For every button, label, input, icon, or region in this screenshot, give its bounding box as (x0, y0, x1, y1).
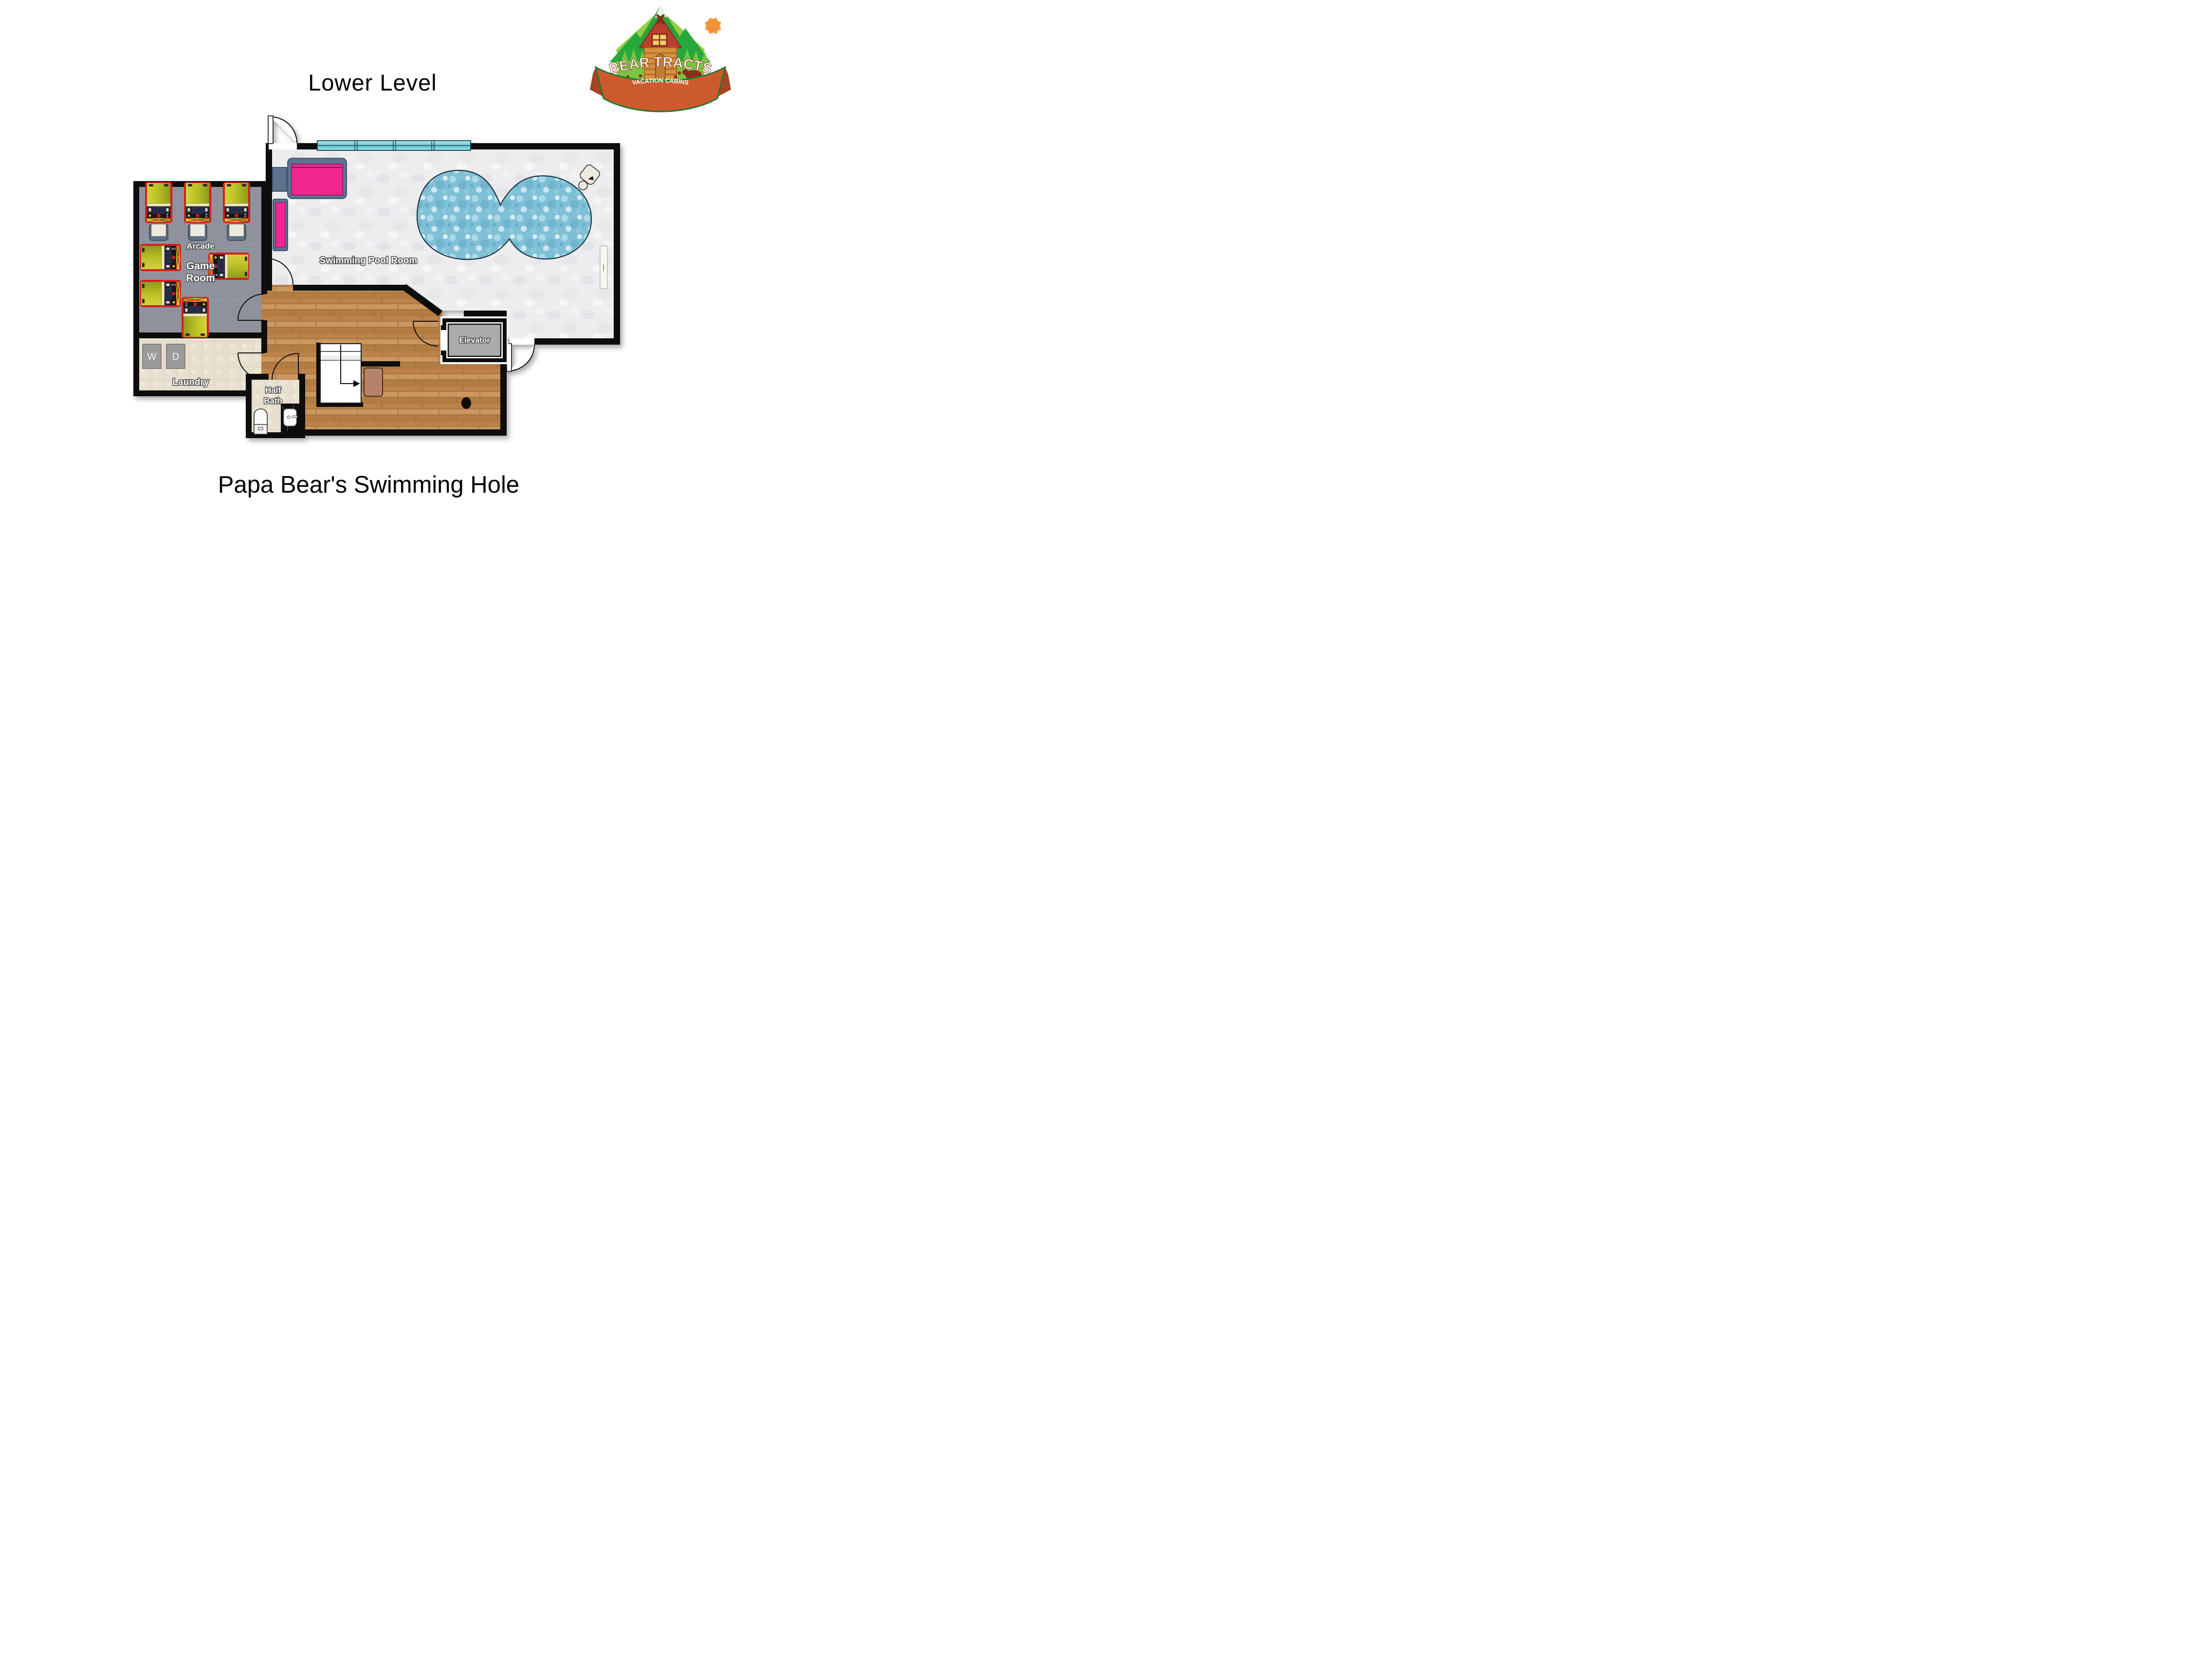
game-room-label-1: Game (186, 260, 215, 272)
pool-room-windows (317, 141, 471, 150)
arcade-machine (182, 297, 209, 338)
exterior-door-top (268, 116, 297, 149)
elevator-door-gap (441, 330, 446, 350)
arcade-stool (149, 224, 168, 240)
arcade-machine (223, 182, 250, 223)
wall-heater (600, 246, 607, 289)
arcade-machine (140, 244, 181, 271)
arcade-stool (227, 224, 246, 240)
dryer: D (166, 344, 185, 369)
floor-plan-page: Lower Level Papa Bear's Swimming Hole (0, 0, 737, 553)
arcade-machine (140, 280, 181, 307)
support-column (461, 397, 471, 409)
building: W D Arcade Game Room S (133, 116, 620, 438)
arcade-stool (188, 224, 207, 240)
hall-bottom-wall (305, 429, 507, 436)
half-bath-door-gap (269, 374, 298, 380)
faucet (292, 416, 297, 418)
bathroom-vanity (281, 404, 299, 433)
game-room-label-2: Room (186, 273, 215, 284)
pool-chaise (273, 199, 288, 251)
half-bath-label-2: Bath (264, 396, 282, 406)
pool-sofa (288, 158, 347, 199)
wall-above-elevator (464, 311, 507, 317)
pool-side-table (273, 167, 287, 191)
wall-stub (266, 285, 267, 291)
stair-nook-wall (361, 361, 400, 367)
elevator-label: Elevator (459, 336, 490, 345)
svg-text:W: W (147, 351, 157, 362)
half-bath-label-1: Half (265, 386, 281, 395)
sun-icon (705, 18, 721, 34)
pool-hall-wall-left (293, 285, 407, 291)
arcade-label: Arcade (186, 241, 215, 251)
hall-right-wall (500, 362, 507, 435)
pool-room-bottom-right-wall (534, 338, 620, 345)
staircase (316, 343, 363, 407)
toilet (254, 409, 267, 434)
floor-mat (364, 368, 383, 396)
page-title: Lower Level (0, 69, 737, 96)
pool-room-label: Swimming Pool Room (320, 256, 418, 266)
pool-room-right-wall (614, 143, 620, 345)
arcade-machine (145, 182, 172, 223)
arcade-machine (184, 182, 211, 223)
laundry-label: Laundry (173, 377, 209, 387)
plan-caption: Papa Bear's Swimming Hole (0, 471, 737, 498)
exterior-door-bottom (507, 338, 534, 371)
washer: W (143, 344, 161, 369)
game-room-door-gap (261, 294, 267, 320)
svg-text:D: D (172, 351, 179, 362)
